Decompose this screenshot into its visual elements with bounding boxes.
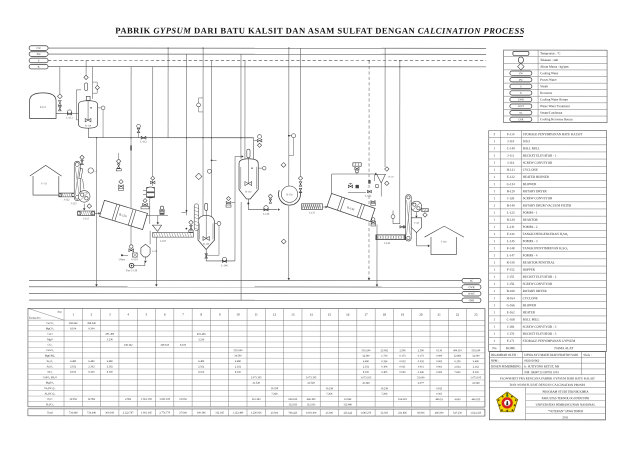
svg-text:Al₂O₃: Al₂O₃ <box>47 365 54 368</box>
svg-text:8.100: 8.100 <box>88 371 95 374</box>
svg-text:F-115: F-115 <box>40 106 47 109</box>
svg-text:F-160: F-160 <box>441 240 448 243</box>
svg-text:L-132: L-132 <box>365 195 372 198</box>
svg-text:C-114: C-114 <box>82 191 87 194</box>
svg-text:WWT: WWT <box>518 105 525 108</box>
svg-text:3.236: 3.236 <box>107 338 114 341</box>
svg-text:12.962: 12.962 <box>69 398 77 401</box>
svg-text:L-122: L-122 <box>507 211 515 215</box>
svg-text:2.122.787: 2.122.787 <box>123 411 134 414</box>
svg-text:7.268: 7.268 <box>271 393 278 396</box>
svg-text:17: 17 <box>364 313 368 317</box>
svg-text:CO₂: CO₂ <box>48 344 53 347</box>
svg-text:Aliran Massa : kg/jam: Aliran Massa : kg/jam <box>540 65 569 69</box>
svg-text:H-121: H-121 <box>507 168 516 172</box>
svg-text:2.774.779: 2.774.779 <box>159 412 170 415</box>
svg-text:NAMA ALAT: NAMA ALAT <box>554 346 573 350</box>
svg-text:J-115: J-115 <box>83 217 90 220</box>
svg-text:L-136: L-136 <box>263 213 270 216</box>
svg-text:J-142: J-142 <box>384 242 391 245</box>
svg-text:112.480: 112.480 <box>343 403 352 406</box>
svg-text:8.104: 8.104 <box>70 327 77 330</box>
svg-text:0.812: 0.812 <box>436 387 443 390</box>
svg-text:J-116: J-116 <box>507 161 514 165</box>
svg-text:734.448: 734.448 <box>69 411 78 414</box>
svg-text:41.548: 41.548 <box>472 382 480 385</box>
svg-text:8.100: 8.100 <box>180 344 187 347</box>
svg-text:12.962: 12.962 <box>344 398 352 401</box>
svg-text:SCREW CONVEYOR: SCREW CONVEYOR <box>523 282 553 286</box>
svg-text:8.100: 8.100 <box>198 371 205 374</box>
svg-text:1.122.480: 1.122.480 <box>233 412 244 415</box>
svg-text:POMPA - 3: POMPA - 3 <box>523 239 538 243</box>
svg-text:6.480: 6.480 <box>473 360 480 363</box>
svg-text:BUCKET ELEVATOR - 1: BUCKET ELEVATOR - 1 <box>523 154 557 158</box>
svg-text:0831010062: 0831010062 <box>524 359 540 363</box>
svg-text:R-150: R-150 <box>507 260 515 264</box>
svg-text:12.962: 12.962 <box>88 398 96 401</box>
svg-text:J-113: J-113 <box>71 202 78 205</box>
svg-text:112.183: 112.183 <box>288 403 297 406</box>
svg-text:K: K <box>38 66 40 69</box>
svg-text:0.009: 0.009 <box>436 355 443 358</box>
svg-text:HOPPER: HOPPER <box>523 268 536 272</box>
svg-text:MgO: MgO <box>47 338 53 341</box>
svg-text:2.077: 2.077 <box>418 382 425 385</box>
svg-text:B-120: B-120 <box>507 189 515 193</box>
svg-text:6.156: 6.156 <box>454 360 461 363</box>
svg-text:L-145: L-145 <box>507 239 515 243</box>
svg-text:1.693.109: 1.693.109 <box>306 412 317 415</box>
svg-text:Al₂(SO₄)₃: Al₂(SO₄)₃ <box>45 392 56 395</box>
svg-text:41.548: 41.548 <box>307 382 315 385</box>
svg-text:1.661.185: 1.661.185 <box>159 398 170 401</box>
svg-text:1.073.195: 1.073.195 <box>361 376 372 379</box>
svg-text:0.173: 0.173 <box>418 355 425 358</box>
svg-text:12.962: 12.962 <box>179 398 187 401</box>
svg-text:R-120: R-120 <box>245 191 252 194</box>
svg-text:CW: CW <box>519 72 524 75</box>
svg-text:3.236: 3.236 <box>198 338 205 341</box>
svg-text:J-155: J-155 <box>507 275 514 279</box>
svg-text:BUCKET ELEVATOR - 3: BUCKET ELEVATOR - 3 <box>523 332 557 336</box>
svg-text:169.615: 169.615 <box>160 344 169 347</box>
svg-text:No: No <box>492 346 496 350</box>
svg-text:J-112: J-112 <box>64 198 71 201</box>
svg-text:FAKULTAS TEKNOLOGI INDUSTRI: FAKULTAS TEKNOLOGI INDUSTRI <box>542 396 590 400</box>
svg-text:0.405: 0.405 <box>381 371 388 374</box>
svg-text:CYCLONE: CYCLONE <box>523 296 538 300</box>
svg-text:2.596: 2.596 <box>400 349 407 352</box>
svg-text:53.660: 53.660 <box>417 376 425 379</box>
svg-text:1.730: 1.730 <box>381 355 388 358</box>
svg-text:R-110: R-110 <box>85 124 92 127</box>
svg-text:Skala :: Skala : <box>583 353 591 357</box>
svg-text:14: 14 <box>309 313 313 317</box>
svg-text:DAN ASAM SULFAT DENGAN CALCINA: DAN ASAM SULFAT DENGAN CALCINATION PROSE… <box>510 383 586 387</box>
svg-text:Proses Water: Proses Water <box>540 78 558 82</box>
svg-text:FLOWSHEET PRA RENCANA PABRIK G: FLOWSHEET PRA RENCANA PABRIK GYPSUM DARI… <box>500 376 595 380</box>
svg-text:27.648: 27.648 <box>179 412 187 415</box>
svg-text:34.590: 34.590 <box>362 355 370 358</box>
svg-text:547.230: 547.230 <box>453 412 462 415</box>
svg-text:466.18: 466.18 <box>435 398 443 401</box>
svg-text:ROTARY DRYER: ROTARY DRYER <box>523 189 548 193</box>
svg-text:Kerosene: Kerosene <box>540 91 553 95</box>
svg-text:H₂SO₄: H₂SO₄ <box>46 403 53 406</box>
svg-text:BLOWER: BLOWER <box>523 182 537 186</box>
svg-text:0.363: 0.363 <box>436 393 443 396</box>
svg-text:E-122: E-122 <box>507 175 515 179</box>
svg-text:SILO: SILO <box>523 139 531 143</box>
svg-text:J-111: J-111 <box>507 154 514 158</box>
svg-text:25.962: 25.962 <box>381 349 389 352</box>
svg-text:138.162: 138.162 <box>124 344 133 347</box>
svg-text:CaCO₃: CaCO₃ <box>46 322 54 325</box>
svg-text:16: 16 <box>346 313 350 317</box>
svg-text:Alur: Alur <box>57 311 62 314</box>
svg-text:125.442: 125.442 <box>343 412 352 415</box>
svg-text:23.506: 23.506 <box>326 412 334 415</box>
svg-text:32.860: 32.860 <box>454 355 462 358</box>
svg-text:2.962: 2.962 <box>125 398 132 401</box>
svg-text:F-114: F-114 <box>507 132 515 136</box>
svg-text:J-169: J-169 <box>507 325 514 329</box>
svg-text:1.226.926: 1.226.926 <box>251 412 262 415</box>
svg-text:Fe₂(SO₄)₃: Fe₂(SO₄)₃ <box>45 387 56 390</box>
svg-text:494.110: 494.110 <box>453 349 462 352</box>
svg-text:15: 15 <box>328 313 332 317</box>
svg-text:L-147: L-147 <box>507 253 515 257</box>
svg-text:1.624.325: 1.624.325 <box>470 412 481 415</box>
svg-text:“VETERAN” JAWA TIMUR: “VETERAN” JAWA TIMUR <box>548 409 583 413</box>
svg-text:G-124: G-124 <box>507 182 516 186</box>
svg-text:52.305: 52.305 <box>381 412 389 415</box>
svg-text:0.032: 0.032 <box>418 360 425 363</box>
svg-text:G-118: G-118 <box>131 258 138 261</box>
svg-text:1.073.195: 1.073.195 <box>306 376 317 379</box>
svg-text:L-111: L-111 <box>66 116 73 119</box>
svg-text:734.448: 734.448 <box>87 411 96 414</box>
svg-text:H₂O: H₂O <box>47 398 52 401</box>
svg-text:0.040: 0.040 <box>399 371 406 374</box>
svg-text:K: K <box>520 92 522 95</box>
svg-text:HEATED BURNER: HEATED BURNER <box>523 175 550 179</box>
svg-text:H-164: H-164 <box>507 296 516 300</box>
svg-text:1.661.185: 1.661.185 <box>141 412 152 415</box>
svg-text:Temperatur : °C: Temperatur : °C <box>540 51 561 55</box>
svg-text:C-140: C-140 <box>507 146 515 150</box>
svg-text:8.100: 8.100 <box>70 371 77 374</box>
svg-text:7.268: 7.268 <box>326 393 333 396</box>
svg-text:2.596: 2.596 <box>418 349 425 352</box>
svg-text:1.661.185: 1.661.185 <box>141 398 152 401</box>
svg-text:23: 23 <box>474 313 478 317</box>
svg-text:MgCO₃: MgCO₃ <box>46 327 54 330</box>
svg-text:REAKTOR: REAKTOR <box>523 218 539 222</box>
svg-text:J-110: J-110 <box>507 139 514 143</box>
svg-text:112.183: 112.183 <box>252 398 261 401</box>
svg-text:B-140: B-140 <box>507 203 515 207</box>
svg-text:F-111: F-111 <box>41 182 48 185</box>
svg-text:13: 13 <box>291 313 295 317</box>
svg-text:DOSEN PEMBIMBING :: DOSEN PEMBIMBING : <box>491 364 523 368</box>
svg-text:0.002: 0.002 <box>436 371 443 374</box>
svg-text:BLOWER: BLOWER <box>523 303 537 307</box>
svg-text:CWR: CWR <box>518 98 524 101</box>
svg-text:Total: Total <box>47 411 53 414</box>
svg-text:J-137: J-137 <box>309 212 316 215</box>
svg-text:L-146: L-146 <box>221 264 228 267</box>
svg-text:2.162: 2.162 <box>88 365 95 368</box>
svg-text:J-170: J-170 <box>507 332 514 336</box>
svg-text:Cooling Water Return: Cooling Water Return <box>540 98 568 102</box>
svg-text:8.100: 8.100 <box>473 371 480 374</box>
svg-text:C-168: C-168 <box>507 317 515 321</box>
svg-text:BUCKET ELEVATOR - 2: BUCKET ELEVATOR - 2 <box>523 275 557 279</box>
svg-text:NIP. 19600713 198703 1001: NIP. 19600713 198703 1001 <box>524 370 559 374</box>
svg-text:R-140: R-140 <box>203 243 210 246</box>
svg-text:E-162: E-162 <box>507 310 515 314</box>
svg-text:1.073.195: 1.073.195 <box>251 376 262 379</box>
svg-text:2.162: 2.162 <box>70 365 77 368</box>
svg-text:SCREW CONVEYOR - 3: SCREW CONVEYOR - 3 <box>523 325 557 329</box>
svg-text:LI: LI <box>95 170 97 173</box>
svg-text:21: 21 <box>438 313 442 317</box>
svg-text:Steam: Steam <box>540 84 548 88</box>
svg-text:POMPA - 2: POMPA - 2 <box>523 225 538 229</box>
svg-text:Udara: Udara <box>119 258 126 261</box>
svg-text:6.480: 6.480 <box>235 360 242 363</box>
svg-text:1.685.275: 1.685.275 <box>361 412 372 415</box>
svg-text:0.108: 0.108 <box>381 366 388 369</box>
svg-text:2.162: 2.162 <box>363 366 370 369</box>
svg-text:2.162: 2.162 <box>198 365 205 368</box>
svg-text:2011: 2011 <box>563 415 569 419</box>
svg-text:519.240: 519.240 <box>471 349 480 352</box>
svg-text:BALL MILL: BALL MILL <box>523 318 540 322</box>
svg-text:L-141: L-141 <box>507 225 515 229</box>
svg-text:6.480: 6.480 <box>88 360 95 363</box>
svg-text:23.506: 23.506 <box>271 412 279 415</box>
svg-text:POMPA - 4: POMPA - 4 <box>523 253 538 257</box>
svg-text:CWR: CWR <box>468 286 474 289</box>
svg-text:SC: SC <box>470 280 473 283</box>
svg-text:POMPA - 1: POMPA - 1 <box>523 211 538 215</box>
svg-text:G-166: G-166 <box>507 303 516 307</box>
svg-text:CW: CW <box>36 47 41 50</box>
svg-text:20: 20 <box>419 313 423 317</box>
svg-text:BALL MILL: BALL MILL <box>523 146 540 150</box>
svg-text:H-132: H-132 <box>389 176 394 179</box>
svg-text:2.054: 2.054 <box>454 366 461 369</box>
svg-text:166.118: 166.118 <box>398 398 407 401</box>
svg-text:J-126: J-126 <box>507 196 514 200</box>
svg-text:CYCLONE: CYCLONE <box>523 168 538 172</box>
svg-text:L-112: L-112 <box>140 141 147 144</box>
svg-text:519.240: 519.240 <box>362 349 371 352</box>
svg-text:6.480: 6.480 <box>198 360 205 363</box>
svg-text:19: 19 <box>401 313 405 317</box>
svg-text:312.185: 312.185 <box>215 412 224 415</box>
svg-text:STORAGE PENYIMPANAN BATU KALSI: STORAGE PENYIMPANAN BATU KALSIT <box>523 132 583 136</box>
svg-text:358.540: 358.540 <box>69 322 78 325</box>
svg-text:CaSO₄.2H₂O: CaSO₄.2H₂O <box>43 376 57 379</box>
svg-text:PW: PW <box>37 53 41 56</box>
svg-text:Cooling Water: Cooling Water <box>540 71 559 75</box>
svg-text:16.238: 16.238 <box>381 387 389 390</box>
svg-text:SC: SC <box>519 112 522 115</box>
svg-text:0.002: 0.002 <box>436 360 443 363</box>
svg-text:0.130: 0.130 <box>436 349 443 352</box>
svg-text:8.100: 8.100 <box>363 371 370 374</box>
svg-text:0.324: 0.324 <box>381 360 388 363</box>
svg-text:6.480: 6.480 <box>70 360 77 363</box>
svg-text:UNIVERSITAS PEMBANGUNAN NASION: UNIVERSITAS PEMBANGUNAN NASIONAL <box>536 403 596 407</box>
svg-text:Mg(OH)₂: Mg(OH)₂ <box>45 354 55 357</box>
svg-text:STORAGE PENYIMPANAN GYPSUM: STORAGE PENYIMPANAN GYPSUM <box>523 339 576 343</box>
svg-text:309.186: 309.186 <box>105 411 114 414</box>
svg-text:Fe₂O₃: Fe₂O₃ <box>47 360 54 363</box>
svg-text:SCREW CONVEYOR: SCREW CONVEYOR <box>523 161 553 165</box>
svg-text:J-116: J-116 <box>160 240 167 243</box>
svg-text:8.100: 8.100 <box>235 371 242 374</box>
svg-text:WWT: WWT <box>468 293 475 296</box>
svg-text:MgSO₄: MgSO₄ <box>46 382 54 385</box>
svg-text:HEATER: HEATER <box>523 310 536 314</box>
svg-text:F-148: F-148 <box>507 246 515 250</box>
svg-text:Fan L-118: Fan L-118 <box>126 269 138 272</box>
svg-text:0.011: 0.011 <box>400 366 407 369</box>
svg-text:NPM :: NPM : <box>491 359 499 363</box>
svg-text:2.162: 2.162 <box>473 366 480 369</box>
svg-text:TANGKI PENGENCERAN H₂SO₄: TANGKI PENGENCERAN H₂SO₄ <box>523 232 569 236</box>
svg-text:58.506: 58.506 <box>417 412 425 415</box>
svg-text:Ir. SUTIYONO KETUT, MS: Ir. SUTIYONO KETUT, MS <box>524 364 559 368</box>
svg-text:KODE: KODE <box>506 346 515 350</box>
svg-text:DIGAMBAR OLEH :: DIGAMBAR OLEH : <box>491 353 518 357</box>
svg-text:1.073.195: 1.073.195 <box>470 376 481 379</box>
svg-text:Cooling Kerosene Return: Cooling Kerosene Return <box>540 117 573 121</box>
svg-text:B-160: B-160 <box>507 289 515 293</box>
svg-text:SiO₂: SiO₂ <box>47 371 52 374</box>
svg-text:291.496: 291.496 <box>197 333 206 336</box>
svg-text:F-171: F-171 <box>507 339 515 343</box>
svg-text:7.695: 7.695 <box>454 371 461 374</box>
svg-text:309.186: 309.186 <box>197 412 206 415</box>
svg-text:16.238: 16.238 <box>326 387 334 390</box>
svg-text:0.011: 0.011 <box>418 366 425 369</box>
svg-text:Tekanan : atm: Tekanan : atm <box>540 58 559 62</box>
svg-text:0.001: 0.001 <box>436 366 443 369</box>
svg-text:CKR: CKR <box>518 118 523 121</box>
svg-text:358.540: 358.540 <box>87 322 96 325</box>
svg-text:ROTARY DRYER: ROTARY DRYER <box>523 289 548 293</box>
svg-text:B-130: B-130 <box>287 193 294 196</box>
svg-text:F-152: F-152 <box>507 268 515 272</box>
svg-text:291.496: 291.496 <box>105 333 114 336</box>
svg-text:Waste Water Treatment: Waste Water Treatment <box>540 104 570 108</box>
svg-text:112.183: 112.183 <box>307 403 316 406</box>
svg-text:12: 12 <box>273 313 277 317</box>
svg-text:519.240: 519.240 <box>234 349 243 352</box>
svg-text:768.423: 768.423 <box>288 412 297 415</box>
svg-text:PABRIK GYPSUM DARI BATU KALSIT: PABRIK GYPSUM DARI BATU KALSIT DAN ASAM … <box>115 25 525 35</box>
svg-text:0.032: 0.032 <box>400 360 407 363</box>
svg-text:34.590: 34.590 <box>472 355 480 358</box>
svg-text:221.856: 221.856 <box>398 412 407 415</box>
svg-text:22: 22 <box>456 313 460 317</box>
svg-text:8.100: 8.100 <box>107 371 114 374</box>
svg-text:CaO: CaO <box>47 333 52 336</box>
svg-text:656.185: 656.185 <box>288 398 297 401</box>
svg-text:466.185: 466.185 <box>307 398 316 401</box>
svg-text:PW: PW <box>519 79 523 82</box>
svg-text:16.238: 16.238 <box>271 387 279 390</box>
svg-text:466.590: 466.590 <box>435 412 444 415</box>
svg-text:CKR: CKR <box>469 299 475 302</box>
svg-text:TANGKI PENYIMPANAN H₂SO₄: TANGKI PENYIMPANAN H₂SO₄ <box>523 246 568 250</box>
svg-text:6.480: 6.480 <box>363 360 370 363</box>
svg-text:7.268: 7.268 <box>381 393 388 396</box>
svg-text:18: 18 <box>383 313 387 317</box>
svg-text:2.162: 2.162 <box>235 365 242 368</box>
svg-text:34.590: 34.590 <box>234 355 242 358</box>
svg-text:F-146: F-146 <box>414 222 419 225</box>
svg-text:SCREW CONVEYOR: SCREW CONVEYOR <box>523 196 553 200</box>
svg-text:10: 10 <box>236 313 240 317</box>
svg-text:CaSO₄: CaSO₄ <box>46 349 53 352</box>
svg-text:11: 11 <box>255 313 258 317</box>
svg-text:F-119: F-119 <box>152 250 157 253</box>
svg-text:ROTARY DRUM VACUUM FILTER: ROTARY DRUM VACUUM FILTER <box>523 204 573 208</box>
svg-text:Komponen: Komponen <box>29 317 41 320</box>
svg-text:446.185: 446.185 <box>471 398 480 401</box>
svg-text:41.548: 41.548 <box>252 382 260 385</box>
svg-text:R-120: R-120 <box>507 218 515 222</box>
svg-text:DEWA AYU MADE DIAH PRATIWI SAR: DEWA AYU MADE DIAH PRATIWI SARI <box>524 353 578 357</box>
svg-text:6.480: 6.480 <box>107 360 114 363</box>
svg-text:Steam/Condensat: Steam/Condensat <box>540 111 562 115</box>
svg-text:PROGRAM STUDI TEKNIK KIMIA: PROGRAM STUDI TEKNIK KIMIA <box>542 390 589 394</box>
svg-text:J-156: J-156 <box>507 282 514 286</box>
svg-text:4.660: 4.660 <box>454 398 461 401</box>
svg-text:REAKTOR PENETRAL: REAKTOR PENETRAL <box>523 261 555 265</box>
svg-text:41.548: 41.548 <box>362 382 370 385</box>
svg-text:8.104: 8.104 <box>88 327 95 330</box>
svg-text:0.173: 0.173 <box>400 355 407 358</box>
svg-text:2.162: 2.162 <box>107 365 114 368</box>
svg-text:0.040: 0.040 <box>418 371 425 374</box>
svg-text:F-144: F-144 <box>507 232 515 236</box>
